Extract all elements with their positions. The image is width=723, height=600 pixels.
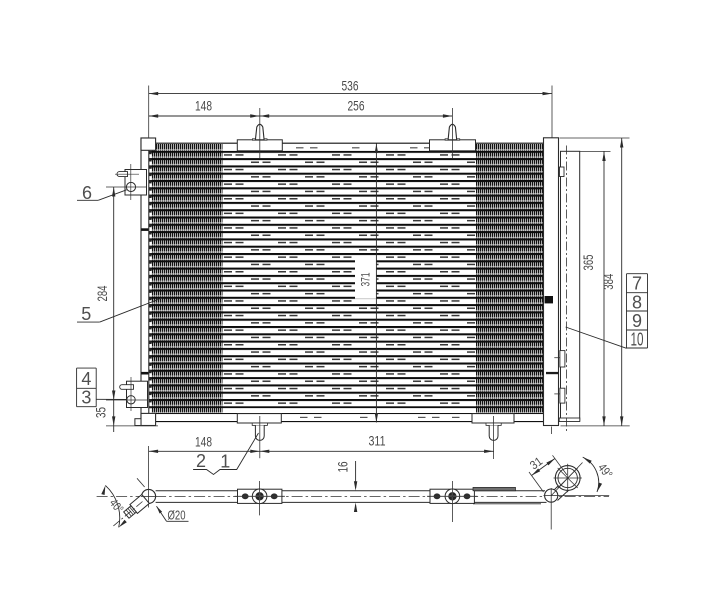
svg-text:284: 284 xyxy=(95,285,110,301)
svg-text:148: 148 xyxy=(195,434,212,449)
svg-text:365: 365 xyxy=(581,254,596,270)
svg-text:7: 7 xyxy=(632,274,642,294)
svg-text:9: 9 xyxy=(632,311,642,331)
svg-text:3: 3 xyxy=(81,388,91,408)
svg-text:8: 8 xyxy=(632,292,642,312)
svg-text:5: 5 xyxy=(81,304,91,324)
svg-text:2: 2 xyxy=(196,451,206,471)
svg-text:4: 4 xyxy=(81,369,91,389)
svg-text:384: 384 xyxy=(601,273,616,289)
svg-text:371: 371 xyxy=(358,272,372,286)
svg-text:1: 1 xyxy=(220,452,230,472)
svg-text:35: 35 xyxy=(94,407,109,418)
svg-text:311: 311 xyxy=(369,434,386,449)
svg-text:536: 536 xyxy=(342,79,359,94)
svg-text:148: 148 xyxy=(195,99,212,114)
svg-text:Ø20: Ø20 xyxy=(168,508,186,522)
svg-text:10: 10 xyxy=(631,330,644,350)
svg-text:256: 256 xyxy=(348,99,365,114)
svg-text:16: 16 xyxy=(336,461,351,472)
